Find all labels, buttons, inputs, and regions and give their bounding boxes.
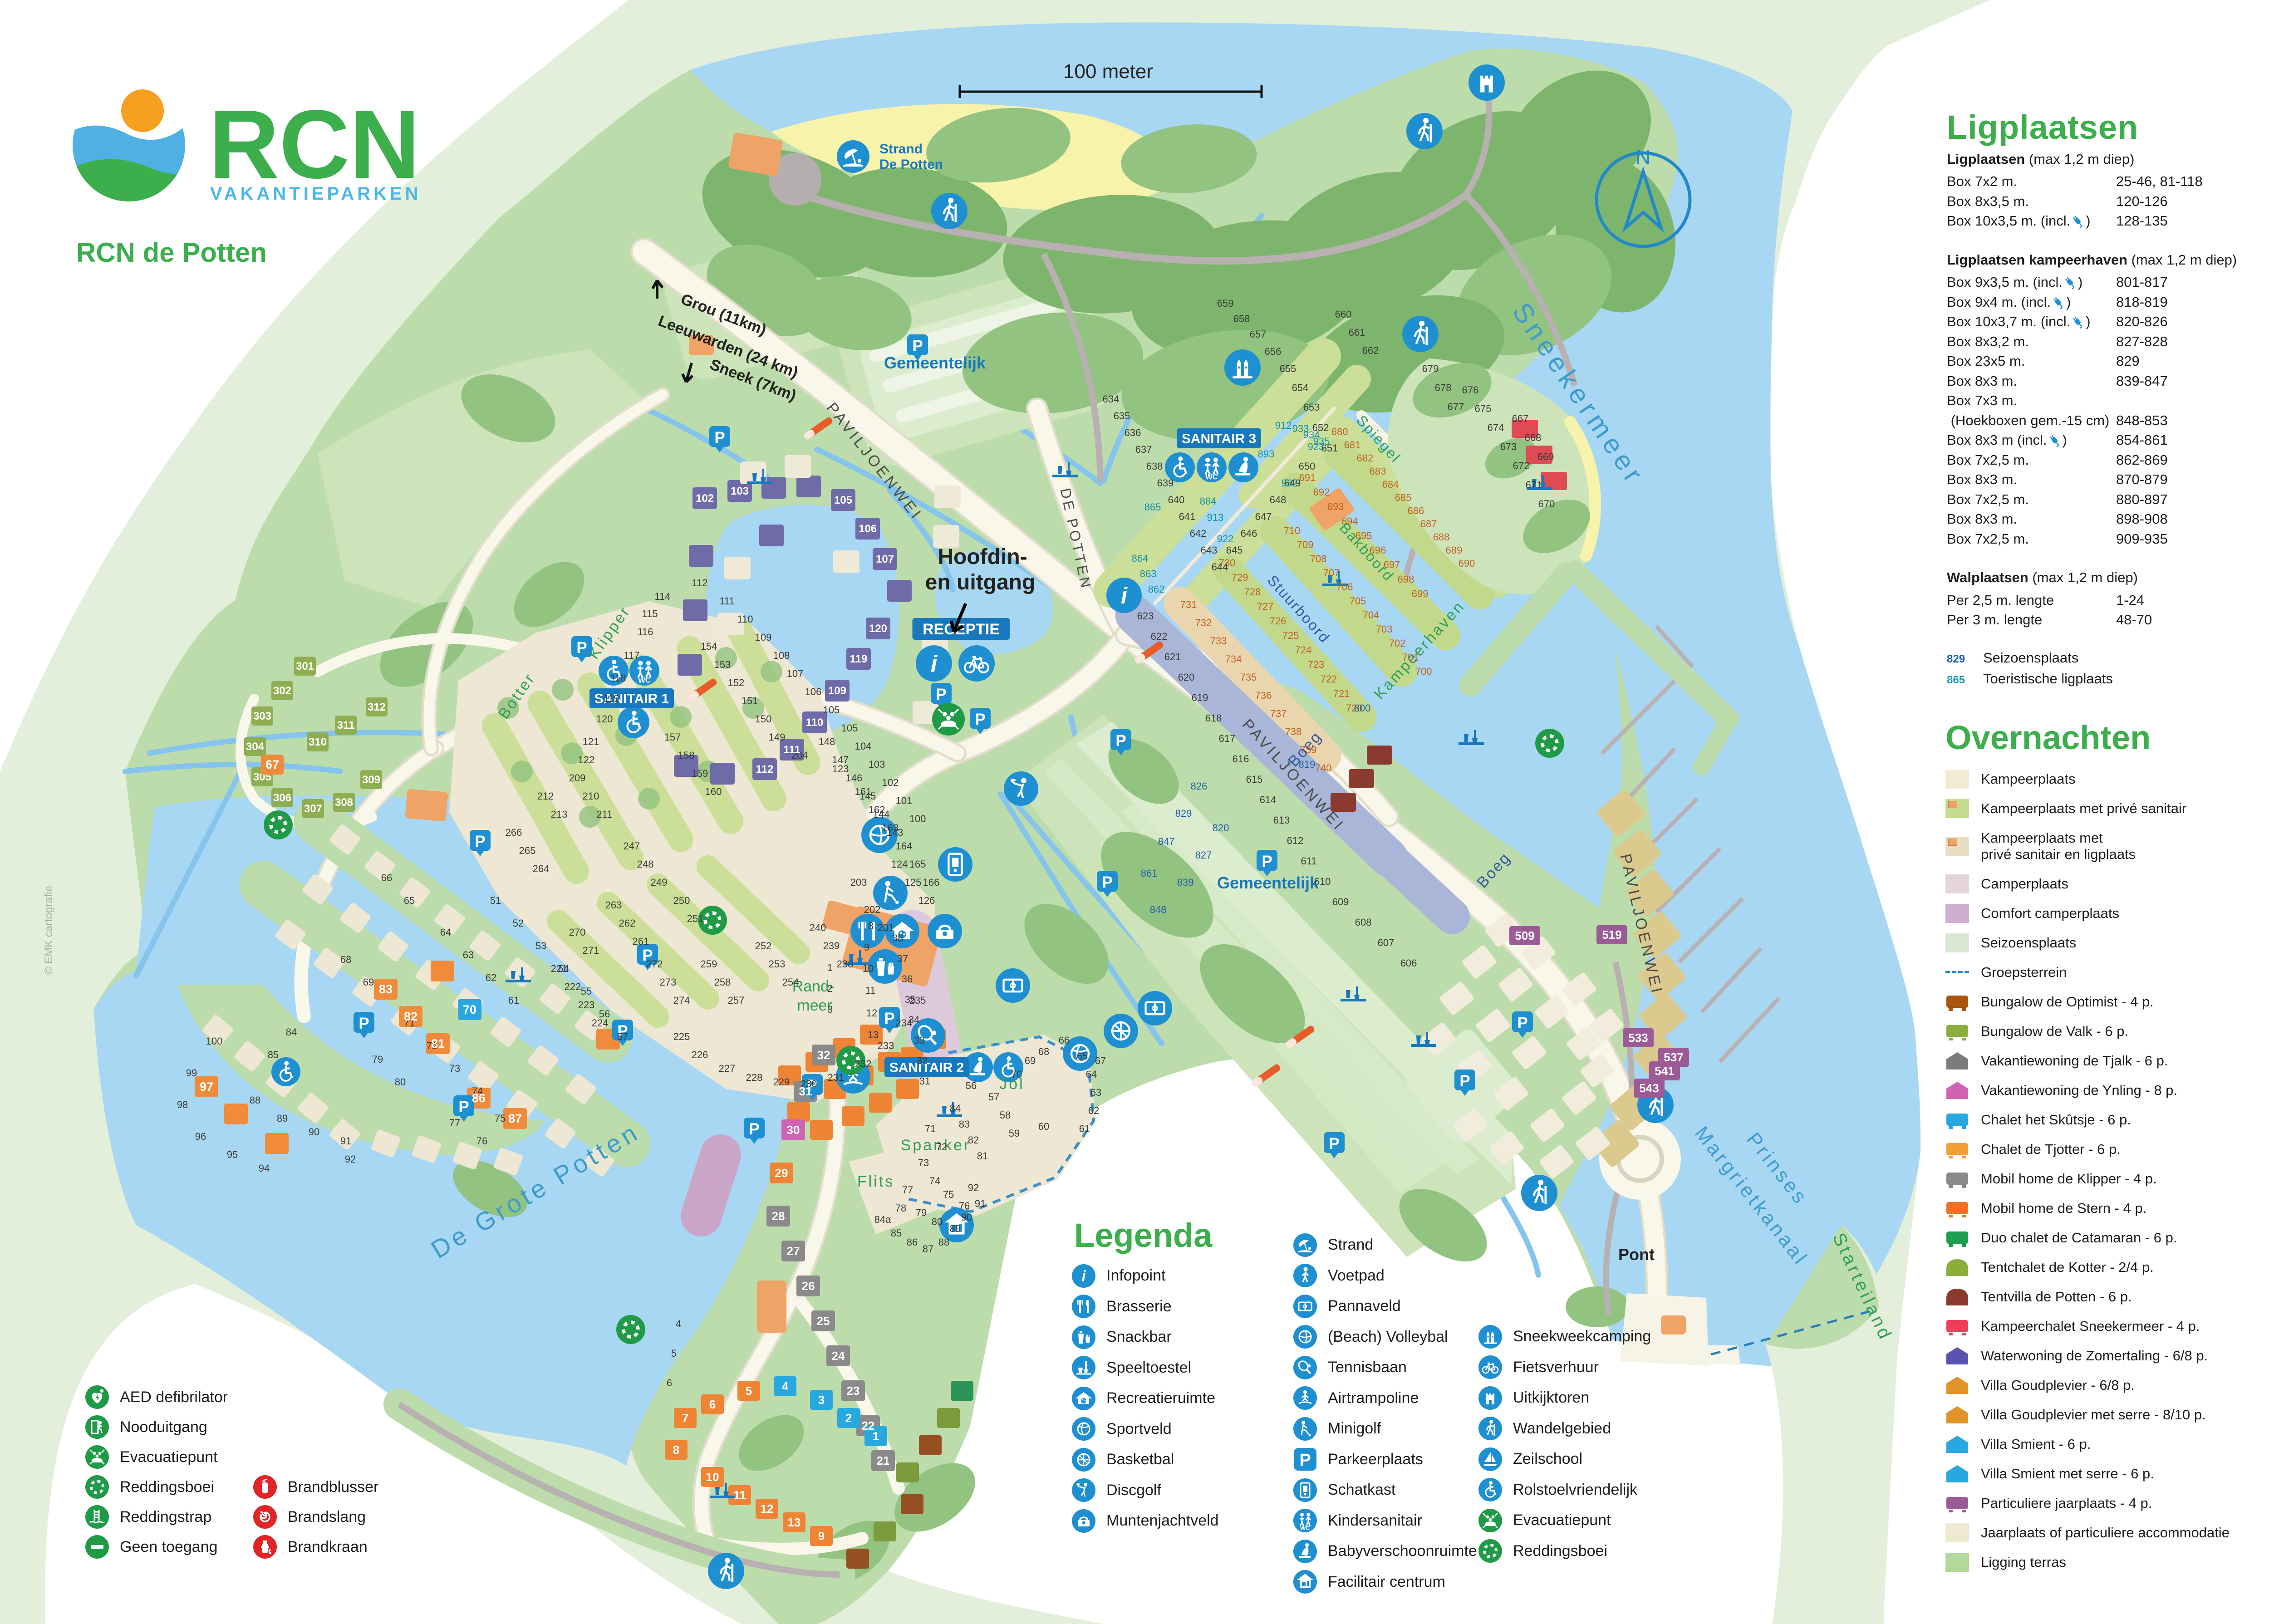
svg-text:102: 102 (882, 777, 899, 788)
svg-text:726: 726 (1270, 615, 1287, 627)
svg-text:150: 150 (755, 713, 772, 725)
svg-text:736: 736 (1255, 690, 1272, 701)
svg-text:662: 662 (1362, 345, 1379, 356)
svg-text:622: 622 (1151, 631, 1168, 642)
svg-text:693: 693 (1327, 501, 1344, 512)
svg-text:613: 613 (1273, 814, 1290, 826)
svg-text:33: 33 (914, 1035, 925, 1046)
svg-text:922: 922 (1217, 533, 1234, 545)
svg-text:725: 725 (1282, 630, 1299, 641)
svg-text:WC: WC (1205, 473, 1218, 481)
svg-text:265: 265 (519, 845, 536, 856)
svg-text:58: 58 (1000, 1109, 1011, 1121)
svg-text:P: P (1517, 1014, 1527, 1032)
svg-text:646: 646 (1241, 528, 1257, 539)
svg-text:659: 659 (1217, 298, 1234, 309)
svg-text:117: 117 (624, 650, 639, 661)
svg-text:157: 157 (664, 731, 681, 743)
svg-text:543: 543 (1639, 1081, 1659, 1095)
svg-text:59: 59 (1009, 1128, 1020, 1139)
svg-text:63: 63 (463, 949, 474, 961)
svg-text:209: 209 (569, 772, 586, 784)
svg-text:700: 700 (1415, 666, 1432, 677)
svg-text:636: 636 (1125, 427, 1141, 438)
svg-text:865: 865 (1144, 501, 1161, 513)
svg-text:612: 612 (1287, 835, 1304, 846)
svg-text:56: 56 (966, 1080, 977, 1091)
svg-text:708: 708 (1310, 553, 1327, 564)
svg-text:75: 75 (495, 1113, 506, 1124)
svg-text:839: 839 (1177, 877, 1194, 888)
svg-text:106: 106 (859, 523, 877, 535)
svg-text:125: 125 (905, 877, 922, 888)
svg-text:124: 124 (891, 859, 908, 870)
svg-text:99: 99 (186, 1067, 197, 1079)
svg-text:70: 70 (463, 1003, 476, 1016)
svg-text:145: 145 (859, 790, 876, 802)
svg-text:P: P (975, 711, 985, 728)
svg-text:Flits: Flits (857, 1173, 894, 1190)
svg-text:308: 308 (335, 796, 353, 809)
svg-text:112: 112 (692, 577, 707, 589)
svg-text:76: 76 (959, 1200, 970, 1212)
svg-text:263: 263 (605, 899, 622, 911)
svg-text:239: 239 (823, 940, 840, 952)
svg-text:79: 79 (916, 1207, 927, 1218)
svg-text:698: 698 (1398, 574, 1414, 585)
svg-text:259: 259 (701, 958, 717, 970)
svg-text:32: 32 (817, 1048, 830, 1062)
svg-text:144: 144 (873, 809, 890, 820)
svg-text:115: 115 (642, 608, 658, 619)
svg-text:682: 682 (1357, 452, 1374, 464)
svg-text:71: 71 (925, 1123, 936, 1134)
svg-text:91: 91 (340, 1135, 351, 1147)
svg-text:685: 685 (1395, 492, 1412, 503)
svg-text:P: P (1329, 1135, 1339, 1153)
svg-text:691: 691 (1299, 472, 1316, 483)
svg-text:P: P (1459, 1072, 1470, 1090)
svg-text:11: 11 (865, 985, 876, 996)
svg-text:12: 12 (866, 1007, 877, 1019)
svg-text:635: 635 (1114, 410, 1130, 422)
svg-text:103: 103 (869, 759, 885, 770)
svg-text:63: 63 (1090, 1087, 1101, 1098)
svg-text:227: 227 (719, 1063, 736, 1074)
svg-text:© EMK cartografie: © EMK cartografie (43, 886, 55, 975)
svg-text:i: i (1081, 1268, 1086, 1285)
svg-text:66: 66 (381, 872, 392, 883)
svg-text:119: 119 (603, 693, 619, 704)
svg-text:126: 126 (918, 895, 935, 906)
svg-text:861: 861 (1141, 868, 1158, 879)
svg-text:62: 62 (486, 972, 496, 983)
svg-text:RECEPTIE: RECEPTIE (923, 621, 1000, 638)
svg-text:254: 254 (782, 976, 799, 988)
svg-text:686: 686 (1408, 505, 1424, 516)
svg-text:667: 667 (1512, 413, 1529, 424)
svg-text:6: 6 (667, 1377, 672, 1388)
svg-text:100 meter: 100 meter (1063, 60, 1153, 83)
svg-text:122: 122 (578, 754, 595, 765)
svg-text:645: 645 (1226, 545, 1243, 556)
svg-text:114: 114 (654, 591, 670, 602)
svg-text:81: 81 (431, 1037, 445, 1050)
svg-text:90: 90 (961, 1212, 972, 1223)
svg-text:274: 274 (673, 995, 690, 1006)
svg-text:707: 707 (1323, 567, 1340, 579)
svg-text:92: 92 (345, 1153, 356, 1165)
svg-text:102: 102 (696, 492, 714, 505)
svg-text:13: 13 (868, 1029, 879, 1040)
svg-text:69: 69 (1025, 1055, 1036, 1066)
svg-text:P: P (714, 429, 725, 446)
svg-text:111: 111 (783, 744, 800, 756)
svg-text:91: 91 (975, 1198, 986, 1209)
svg-text:932: 932 (1282, 477, 1298, 489)
svg-text:90: 90 (309, 1126, 319, 1138)
svg-text:688: 688 (1433, 531, 1450, 543)
svg-text:696: 696 (1370, 545, 1386, 556)
svg-text:P: P (1115, 732, 1126, 750)
svg-text:80: 80 (395, 1076, 406, 1088)
svg-text:610: 610 (1314, 876, 1331, 887)
svg-text:69: 69 (363, 976, 374, 988)
svg-text:110: 110 (806, 716, 824, 729)
svg-text:Strand: Strand (879, 142, 923, 157)
svg-text:710: 710 (1284, 525, 1301, 536)
svg-text:233: 233 (878, 1040, 894, 1051)
svg-text:160: 160 (705, 786, 722, 797)
svg-text:25: 25 (817, 1314, 830, 1328)
svg-text:Hoofdin-: Hoofdin- (938, 545, 1027, 569)
svg-text:272: 272 (646, 958, 663, 970)
svg-text:201: 201 (878, 922, 894, 933)
svg-text:70: 70 (1011, 1069, 1022, 1080)
svg-text:84: 84 (950, 1103, 961, 1114)
svg-text:303: 303 (253, 710, 271, 722)
svg-text:77: 77 (449, 1117, 460, 1128)
svg-text:5: 5 (671, 1348, 677, 1359)
svg-text:28: 28 (772, 1209, 785, 1223)
svg-text:668: 668 (1525, 432, 1542, 443)
svg-text:252: 252 (755, 940, 772, 952)
svg-text:262: 262 (619, 917, 636, 929)
svg-text:210: 210 (583, 790, 599, 802)
svg-text:112: 112 (756, 763, 774, 775)
svg-text:78: 78 (895, 1202, 906, 1214)
svg-text:623: 623 (1137, 610, 1154, 622)
svg-text:76: 76 (476, 1135, 487, 1147)
svg-text:WC: WC (1300, 1525, 1310, 1531)
svg-text:724: 724 (1295, 644, 1312, 656)
svg-text:149: 149 (769, 731, 786, 743)
svg-text:P: P (936, 686, 946, 703)
svg-text:307: 307 (304, 803, 322, 815)
svg-text:739: 739 (1300, 744, 1317, 756)
svg-text:62: 62 (1088, 1105, 1099, 1116)
svg-text:P: P (1262, 853, 1272, 870)
svg-text:53: 53 (535, 940, 546, 952)
svg-text:247: 247 (624, 840, 640, 852)
svg-text:519: 519 (1602, 928, 1621, 942)
svg-text:60: 60 (1038, 1121, 1049, 1132)
svg-text:83: 83 (379, 982, 393, 996)
svg-text:249: 249 (651, 877, 668, 888)
svg-text:701: 701 (1402, 652, 1419, 663)
svg-text:864: 864 (1132, 553, 1149, 564)
svg-text:11: 11 (733, 1488, 746, 1502)
svg-text:66: 66 (1059, 1035, 1070, 1046)
svg-text:94: 94 (259, 1163, 270, 1174)
svg-text:634: 634 (1103, 393, 1120, 405)
svg-text:618: 618 (1205, 712, 1222, 724)
svg-text:820: 820 (1213, 822, 1229, 834)
svg-text:614: 614 (1260, 794, 1277, 805)
svg-text:312: 312 (368, 701, 386, 713)
svg-text:212: 212 (537, 790, 554, 802)
svg-text:68: 68 (1038, 1046, 1049, 1057)
svg-text:738: 738 (1285, 726, 1302, 737)
svg-text:87: 87 (508, 1112, 522, 1125)
svg-text:238: 238 (837, 958, 854, 970)
svg-text:655: 655 (1280, 363, 1297, 374)
svg-text:38: 38 (892, 932, 903, 944)
svg-text:98: 98 (177, 1099, 188, 1110)
svg-text:615: 615 (1246, 774, 1263, 785)
svg-text:P: P (576, 639, 587, 657)
svg-text:101: 101 (896, 795, 913, 806)
svg-text:107: 107 (876, 553, 894, 565)
svg-text:731: 731 (1180, 599, 1197, 610)
svg-text:57: 57 (988, 1091, 999, 1103)
svg-text:728: 728 (1244, 586, 1261, 598)
svg-text:202: 202 (864, 904, 881, 915)
svg-text:250: 250 (673, 895, 690, 906)
svg-text:656: 656 (1265, 346, 1282, 357)
svg-text:85: 85 (891, 1227, 902, 1239)
svg-text:671: 671 (1526, 479, 1542, 491)
svg-text:85: 85 (268, 1049, 279, 1060)
svg-text:89: 89 (277, 1113, 288, 1124)
svg-text:617: 617 (1219, 733, 1236, 744)
svg-text:118: 118 (610, 672, 626, 684)
svg-text:86: 86 (907, 1236, 918, 1248)
svg-text:541: 541 (1655, 1064, 1674, 1078)
svg-text:253: 253 (769, 958, 786, 970)
svg-text:95: 95 (227, 1149, 238, 1160)
svg-text:154: 154 (701, 641, 717, 652)
svg-text:3: 3 (818, 1393, 825, 1407)
svg-text:654: 654 (1292, 382, 1309, 393)
svg-text:73: 73 (918, 1157, 929, 1168)
svg-text:703: 703 (1376, 623, 1393, 635)
svg-text:N: N (1635, 145, 1650, 169)
svg-text:56: 56 (599, 1008, 610, 1020)
svg-text:61: 61 (508, 995, 519, 1006)
svg-text:158: 158 (678, 750, 695, 761)
svg-text:800: 800 (1354, 702, 1371, 714)
svg-text:689: 689 (1446, 545, 1463, 556)
svg-text:21: 21 (877, 1454, 890, 1467)
svg-text:258: 258 (714, 976, 731, 988)
svg-text:733: 733 (1210, 635, 1227, 647)
svg-text:81: 81 (977, 1150, 988, 1162)
svg-text:61: 61 (1079, 1123, 1090, 1134)
svg-text:669: 669 (1537, 451, 1554, 462)
svg-text:637: 637 (1135, 444, 1152, 455)
svg-text:690: 690 (1459, 558, 1475, 569)
svg-text:641: 641 (1179, 511, 1196, 522)
svg-text:273: 273 (660, 976, 677, 988)
svg-text:672: 672 (1513, 460, 1530, 471)
svg-text:702: 702 (1389, 638, 1406, 649)
svg-text:621: 621 (1164, 651, 1181, 662)
svg-text:309: 309 (362, 774, 380, 786)
svg-text:653: 653 (1303, 402, 1320, 413)
svg-text:P: P (884, 1010, 894, 1027)
svg-text:270: 270 (569, 927, 586, 938)
svg-text:680: 680 (1331, 426, 1348, 437)
svg-text:734: 734 (1225, 653, 1242, 665)
svg-text:SANITAIR 3: SANITAIR 3 (1182, 432, 1256, 446)
svg-text:705: 705 (1350, 595, 1366, 607)
svg-text:RCN: RCN (209, 89, 420, 199)
svg-text:727: 727 (1257, 601, 1274, 612)
svg-text:619: 619 (1192, 692, 1208, 703)
svg-text:248: 248 (637, 859, 654, 870)
svg-text:92: 92 (968, 1182, 979, 1193)
svg-text:65: 65 (1077, 1050, 1088, 1062)
svg-text:695: 695 (1356, 530, 1372, 541)
svg-text:826: 826 (1191, 780, 1208, 792)
svg-text:723: 723 (1308, 659, 1325, 670)
svg-text:709: 709 (1297, 539, 1314, 550)
svg-text:699: 699 (1412, 588, 1429, 599)
svg-text:264: 264 (533, 863, 550, 874)
svg-text:819: 819 (1299, 759, 1316, 770)
svg-text:109: 109 (828, 685, 846, 697)
svg-text:6: 6 (709, 1398, 716, 1411)
svg-text:72: 72 (936, 1141, 947, 1153)
svg-text:146: 146 (846, 772, 863, 784)
svg-text:650: 650 (1299, 461, 1316, 472)
svg-text:607: 607 (1378, 937, 1395, 948)
svg-text:116: 116 (637, 626, 653, 638)
svg-text:104: 104 (855, 741, 872, 752)
svg-text:231: 231 (828, 1072, 845, 1083)
svg-text:120: 120 (596, 713, 613, 725)
svg-text:51: 51 (490, 895, 501, 906)
svg-text:13: 13 (788, 1516, 801, 1529)
svg-text:848: 848 (1150, 904, 1167, 915)
svg-text:84: 84 (286, 1026, 297, 1038)
svg-text:678: 678 (1435, 382, 1452, 393)
svg-text:32: 32 (917, 1055, 928, 1066)
svg-text:10: 10 (706, 1470, 719, 1484)
svg-text:8: 8 (673, 1443, 679, 1457)
svg-text:77: 77 (902, 1184, 913, 1196)
svg-text:640: 640 (1168, 494, 1185, 505)
svg-text:827: 827 (1195, 849, 1212, 861)
svg-text:164: 164 (896, 840, 913, 852)
svg-text:36: 36 (902, 973, 913, 985)
svg-text:737: 737 (1270, 708, 1287, 719)
svg-text:153: 153 (714, 659, 731, 670)
svg-text:P: P (475, 833, 485, 850)
svg-text:9: 9 (864, 942, 869, 953)
svg-text:706: 706 (1336, 581, 1353, 593)
svg-text:3: 3 (827, 1004, 833, 1015)
svg-text:638: 638 (1146, 461, 1163, 472)
svg-text:i: i (1121, 583, 1128, 608)
svg-text:704: 704 (1363, 609, 1380, 621)
svg-text:729: 729 (1232, 572, 1248, 583)
svg-text:55: 55 (581, 986, 592, 997)
svg-text:82: 82 (968, 1134, 979, 1146)
svg-text:en uitgang: en uitgang (925, 570, 1036, 594)
svg-text:658: 658 (1233, 313, 1250, 324)
svg-text:105: 105 (841, 722, 858, 734)
svg-text:P: P (1102, 873, 1112, 891)
svg-text:670: 670 (1538, 498, 1555, 510)
svg-text:311: 311 (337, 719, 355, 731)
svg-text:P: P (912, 337, 923, 355)
svg-text:616: 616 (1233, 753, 1249, 765)
svg-text:644: 644 (1212, 561, 1228, 573)
svg-text:Gemeentelijk: Gemeentelijk (1217, 873, 1319, 892)
svg-text:721: 721 (1333, 688, 1350, 699)
svg-text:722: 722 (1321, 673, 1337, 685)
svg-text:111: 111 (719, 595, 734, 607)
svg-text:674: 674 (1488, 422, 1504, 433)
svg-text:229: 229 (773, 1076, 790, 1088)
svg-text:29: 29 (775, 1166, 788, 1180)
svg-text:301: 301 (296, 660, 314, 672)
svg-text:226: 226 (692, 1049, 708, 1060)
svg-text:Gemeentelijk: Gemeentelijk (884, 353, 986, 372)
svg-text:152: 152 (728, 677, 745, 688)
svg-text:735: 735 (1240, 672, 1257, 683)
svg-text:100: 100 (909, 813, 926, 824)
svg-text:271: 271 (583, 945, 599, 956)
svg-text:679: 679 (1422, 363, 1439, 374)
svg-text:829: 829 (1175, 808, 1192, 819)
svg-text:37: 37 (897, 953, 908, 964)
svg-text:673: 673 (1500, 441, 1517, 452)
svg-text:683: 683 (1370, 466, 1386, 477)
svg-text:84a: 84a (874, 1214, 891, 1225)
svg-text:88: 88 (938, 1236, 949, 1248)
svg-text:88: 88 (250, 1094, 260, 1106)
svg-text:121: 121 (583, 736, 599, 747)
svg-text:657: 657 (1250, 329, 1267, 340)
svg-text:9: 9 (818, 1529, 825, 1543)
svg-text:100: 100 (206, 1035, 223, 1047)
svg-text:608: 608 (1355, 917, 1372, 928)
svg-text:P: P (458, 1098, 469, 1116)
svg-text:863: 863 (1140, 568, 1157, 579)
svg-text:647: 647 (1255, 511, 1272, 522)
svg-text:30: 30 (787, 1123, 800, 1137)
svg-text:862: 862 (1148, 584, 1165, 595)
svg-text:232: 232 (855, 1058, 872, 1070)
svg-text:86: 86 (472, 1091, 486, 1105)
svg-text:10: 10 (863, 963, 874, 974)
svg-text:847: 847 (1158, 836, 1175, 847)
svg-text:304: 304 (246, 741, 265, 753)
svg-text:80: 80 (932, 1216, 943, 1227)
